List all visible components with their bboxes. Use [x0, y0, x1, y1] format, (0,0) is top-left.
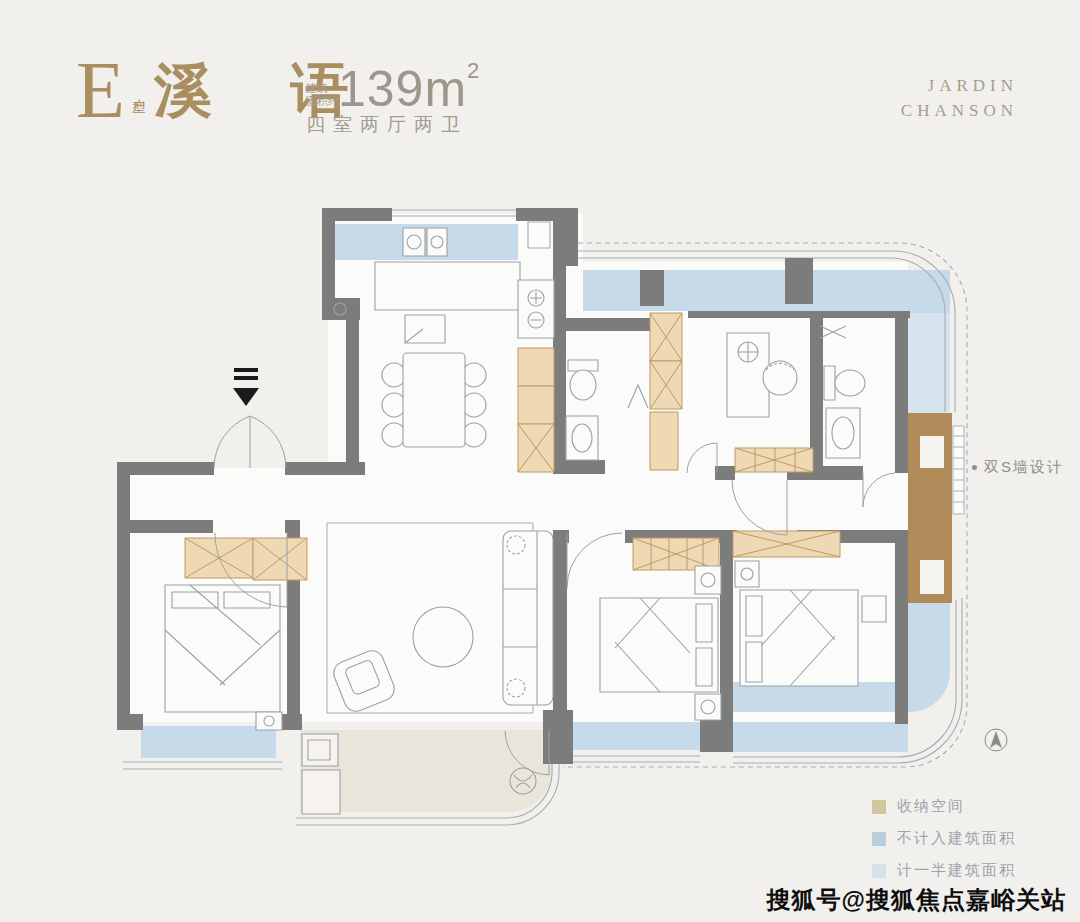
floorplan-page: E 户型 溪 语 建筑 面积约 139m2 四室两厅两卫 JARDIN CHAN… [0, 0, 1080, 922]
sofa-icon [503, 531, 553, 705]
double-s-wall [908, 413, 964, 603]
legend-label: 计一半建筑面积 [897, 861, 1016, 880]
entry-door-leaf-right [250, 416, 286, 468]
compass-icon [985, 729, 1007, 751]
vanity-sink-icon-2 [826, 408, 860, 458]
legend-item-storage: 收纳空间 [872, 797, 1016, 816]
half-area-swatch [872, 864, 886, 878]
double-s-wall-annotation: 双S墙设计 [972, 458, 1064, 477]
floorplan-drawing [0, 0, 1080, 922]
nightstand-icon-1 [256, 712, 282, 730]
washing-machine-icon [403, 228, 447, 256]
legend: 收纳空间 不计入建筑面积 计一半建筑面积 [872, 797, 1016, 893]
nightstand-icon-4 [735, 561, 759, 587]
bullet-dot-icon [972, 465, 977, 470]
nightstand-icon-3 [695, 694, 721, 720]
dining-table-icon [382, 353, 486, 447]
desk-chair-icon [763, 361, 797, 395]
legend-item-half-area: 计一半建筑面积 [872, 861, 1016, 880]
bed-icon-1 [165, 585, 280, 712]
legend-item-excluded-area: 不计入建筑面积 [872, 829, 1016, 848]
entry-door-leaf-left [214, 416, 250, 468]
excluded-area-swatch [872, 832, 886, 846]
legend-label: 收纳空间 [897, 797, 965, 816]
stove-icon [518, 280, 554, 338]
legend-label: 不计入建筑面积 [897, 829, 1016, 848]
vanity-sink-icon [566, 416, 598, 460]
toilet-icon [568, 360, 598, 400]
entrance-arrow-icon [233, 368, 259, 406]
nightstand-icon-2 [695, 566, 721, 594]
bed-icon-2 [600, 598, 718, 692]
nightstand-icon-5 [862, 596, 886, 622]
storage-swatch [872, 800, 886, 814]
watermark: 搜狐号@搜狐焦点嘉峪关站 [767, 884, 1066, 916]
laundry-tub-icon [302, 734, 340, 814]
bed-icon-3 [740, 590, 858, 686]
double-s-wall-label: 双S墙设计 [984, 458, 1064, 477]
